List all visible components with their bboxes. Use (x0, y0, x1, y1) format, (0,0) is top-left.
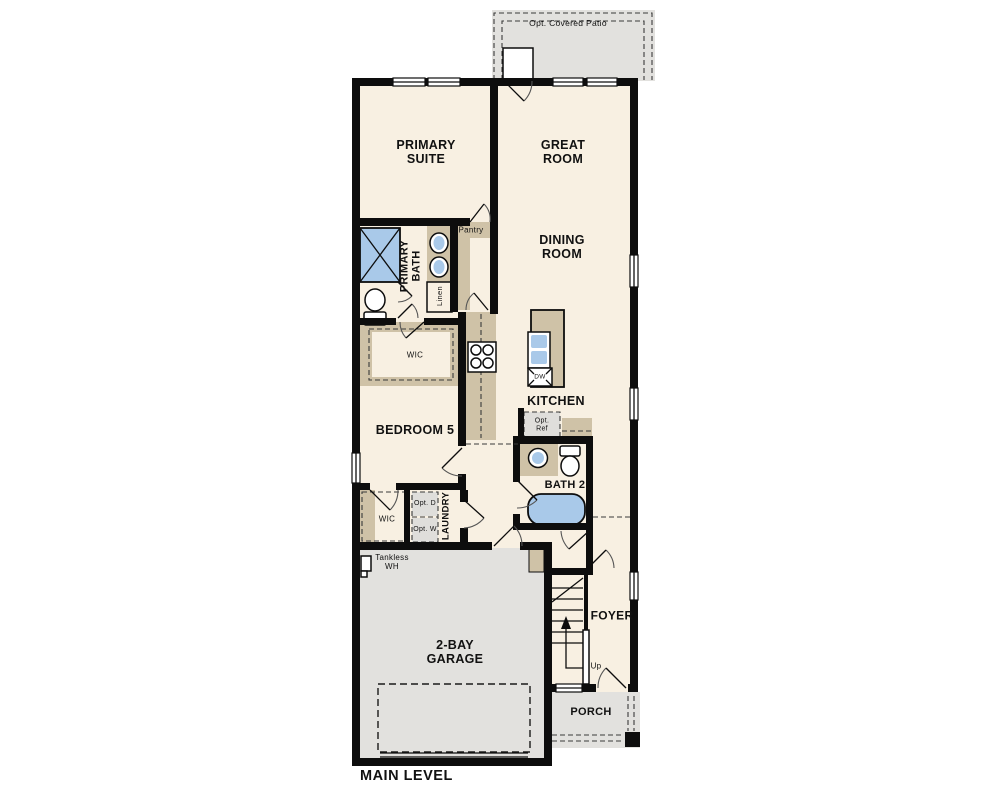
cooktop-icon (468, 342, 496, 372)
porch-label: PORCH (556, 706, 626, 718)
window (428, 78, 460, 86)
foyer-label: FOYER (577, 609, 647, 622)
great-room-label: GREAT ROOM (533, 138, 593, 166)
window (587, 78, 617, 86)
window (553, 78, 583, 86)
porch-post (625, 732, 640, 747)
window (630, 572, 638, 600)
linen-label: Linen (436, 276, 444, 316)
bath2-sink-icon (529, 449, 548, 468)
laundry-label: LAUNDRY (442, 481, 453, 551)
bath2-label: BATH 2 (530, 479, 600, 491)
opt-ref-label: Opt. Ref (529, 418, 555, 435)
shower (360, 228, 400, 282)
window (630, 388, 638, 420)
opt-dryer-label: Opt. D (413, 500, 437, 508)
window (393, 78, 425, 86)
bedroom5-label: BEDROOM 5 (355, 423, 475, 437)
wic-primary-label: WIC (395, 352, 435, 361)
window (352, 453, 360, 483)
garage-label: 2-BAY GARAGE (419, 638, 491, 666)
patio-label: Opt. Covered Patio (508, 19, 628, 29)
opt-washer-label: Opt. W (413, 526, 437, 534)
wic2-label: WIC (367, 516, 407, 525)
window (630, 255, 638, 287)
pantry-label: Pantry (451, 227, 491, 236)
dining-room-label: DINING ROOM (532, 233, 592, 261)
patio-door-threshold (503, 48, 533, 81)
bath2-toilet-icon (560, 446, 580, 476)
floor-plan-page: Opt. Covered Patio PRIMARY SUITE GREAT R… (0, 0, 1000, 800)
dishwasher-label: DW (530, 373, 550, 380)
tankless-wh-label: Tankless WH (369, 554, 415, 572)
island-sink-icon (528, 332, 550, 368)
plan-title: MAIN LEVEL (360, 768, 520, 784)
stairs-up-label: Up (584, 663, 608, 672)
kitchen-label: KITCHEN (496, 394, 616, 408)
primary-suite-label: PRIMARY SUITE (390, 138, 462, 166)
window (556, 684, 582, 692)
stair-rail (583, 630, 589, 684)
primary-bath-label: PRIMARY BATH (399, 234, 424, 298)
